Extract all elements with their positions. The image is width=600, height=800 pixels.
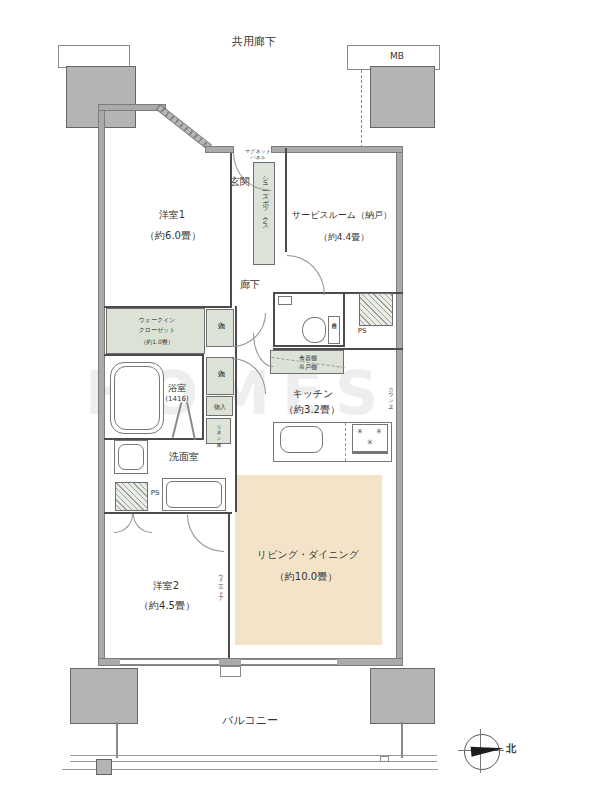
- pipe-space-kitchen: [359, 293, 393, 326]
- linen-label: リネン庫: [216, 421, 221, 438]
- window-living: [241, 659, 337, 665]
- wall-right: [396, 146, 403, 665]
- bath-label: 浴室: [168, 384, 186, 394]
- wall-top-mid: [205, 146, 234, 153]
- balcony-partition: [220, 666, 241, 677]
- wall-diagonal: [156, 104, 212, 150]
- western2-door-arc: [187, 515, 224, 552]
- pillar-bottom-right: [370, 668, 435, 724]
- double-door-arc-left: [114, 514, 133, 533]
- north-label: 北: [506, 743, 516, 754]
- living-dining-floor: [235, 475, 382, 645]
- burner-icon: ✳: [376, 427, 383, 436]
- living-dining-label: リビング・ダイニング: [257, 549, 359, 560]
- bathtub-inner: [114, 366, 160, 430]
- wic-label-1: ウォークイン: [139, 317, 176, 324]
- toilet-bowl: [302, 317, 326, 343]
- western2-label: 洋室2: [153, 580, 179, 591]
- washroom-label: 洗面室: [169, 451, 199, 462]
- closet-a: 物入: [206, 309, 234, 347]
- wall-segment: [273, 345, 343, 347]
- pillar-bottom-left: [70, 668, 138, 724]
- hallway-label: 廊下: [240, 279, 260, 290]
- pillar-top-right: [370, 66, 435, 128]
- toilet-tank: [328, 316, 340, 344]
- entrance-panel-label-2: パネル: [250, 155, 265, 161]
- wall-segment: [285, 148, 287, 252]
- wall-segment: [202, 354, 204, 440]
- living-dining-size: （約10.0畳）: [275, 571, 337, 582]
- closet-b: 物入: [206, 357, 234, 395]
- balcony-drain: [96, 759, 112, 775]
- entrance-label: 玄関: [230, 176, 250, 187]
- wall-segment: [228, 514, 230, 658]
- western2-size: （約4.5畳）: [139, 600, 195, 611]
- wall-segment: [273, 292, 275, 347]
- walk-in-closet: ウォークイン クローゼット （約1.0畳）: [106, 308, 205, 354]
- ps-label-b: PS: [151, 490, 160, 498]
- service-room-door-arc: [287, 255, 325, 295]
- western1-label: 洋室1: [159, 209, 185, 220]
- wall-left: [98, 104, 105, 665]
- cupboard-label-2: 吊戸棚: [299, 364, 317, 371]
- double-door-arc-right: [133, 514, 152, 533]
- service-room-label: サービスルーム（納戸）: [292, 211, 392, 221]
- corridor-slab-left: [58, 45, 130, 68]
- balcony-label: バルコニー: [222, 715, 278, 727]
- bath-size: (1416): [165, 396, 188, 404]
- toilet-hand-basin: [278, 296, 292, 305]
- wic-label-2: クローゼット: [139, 327, 176, 334]
- wall-segment: [343, 292, 345, 347]
- balcony-side-line: [401, 722, 403, 758]
- common-corridor-label: 共用廊下: [232, 36, 276, 48]
- washer-pan-inner: [166, 481, 222, 508]
- service-room-size: （約4.4畳）: [319, 233, 369, 243]
- burner-icon: ✳: [367, 438, 374, 447]
- balcony-side-line: [116, 722, 118, 758]
- mb-dashed-line: [361, 70, 362, 148]
- kitchen-label: キッチン: [293, 388, 334, 399]
- cupboard-label-1: 食器棚: [299, 355, 317, 362]
- window-western2: [120, 659, 219, 665]
- wall-door-label: ウォールドア: [218, 570, 223, 599]
- closet-c-label: 物入: [214, 404, 226, 411]
- balcony-fitting: [380, 756, 389, 762]
- wic-size-label: （約1.0畳）: [140, 339, 174, 346]
- wall-top-right: [271, 146, 403, 153]
- ps-label-a: PS: [358, 328, 367, 336]
- linen-closet: リネン庫: [206, 418, 231, 444]
- closet-c: 物入: [206, 396, 233, 416]
- mb-label: MB: [390, 52, 404, 62]
- western1-size: （約6.0畳）: [145, 230, 201, 241]
- kitchen-cupboard: 食器棚 吊戸棚: [270, 350, 344, 374]
- burner-icon: ✳: [357, 427, 364, 436]
- kitchen-sink: [280, 426, 323, 453]
- kitchen-size: （約3.2畳）: [284, 404, 340, 415]
- pipe-space-washroom: [115, 482, 148, 511]
- wall-segment: [104, 354, 204, 356]
- vanity-bowl: [118, 444, 144, 470]
- counter-label: カウンター: [388, 383, 393, 406]
- balcony-rail: [62, 769, 438, 770]
- counter-divider: [345, 423, 346, 461]
- floor-plan: HOMES 共用廊下 MB シューズボックス ウォークイン クローゼット （約1…: [0, 0, 600, 800]
